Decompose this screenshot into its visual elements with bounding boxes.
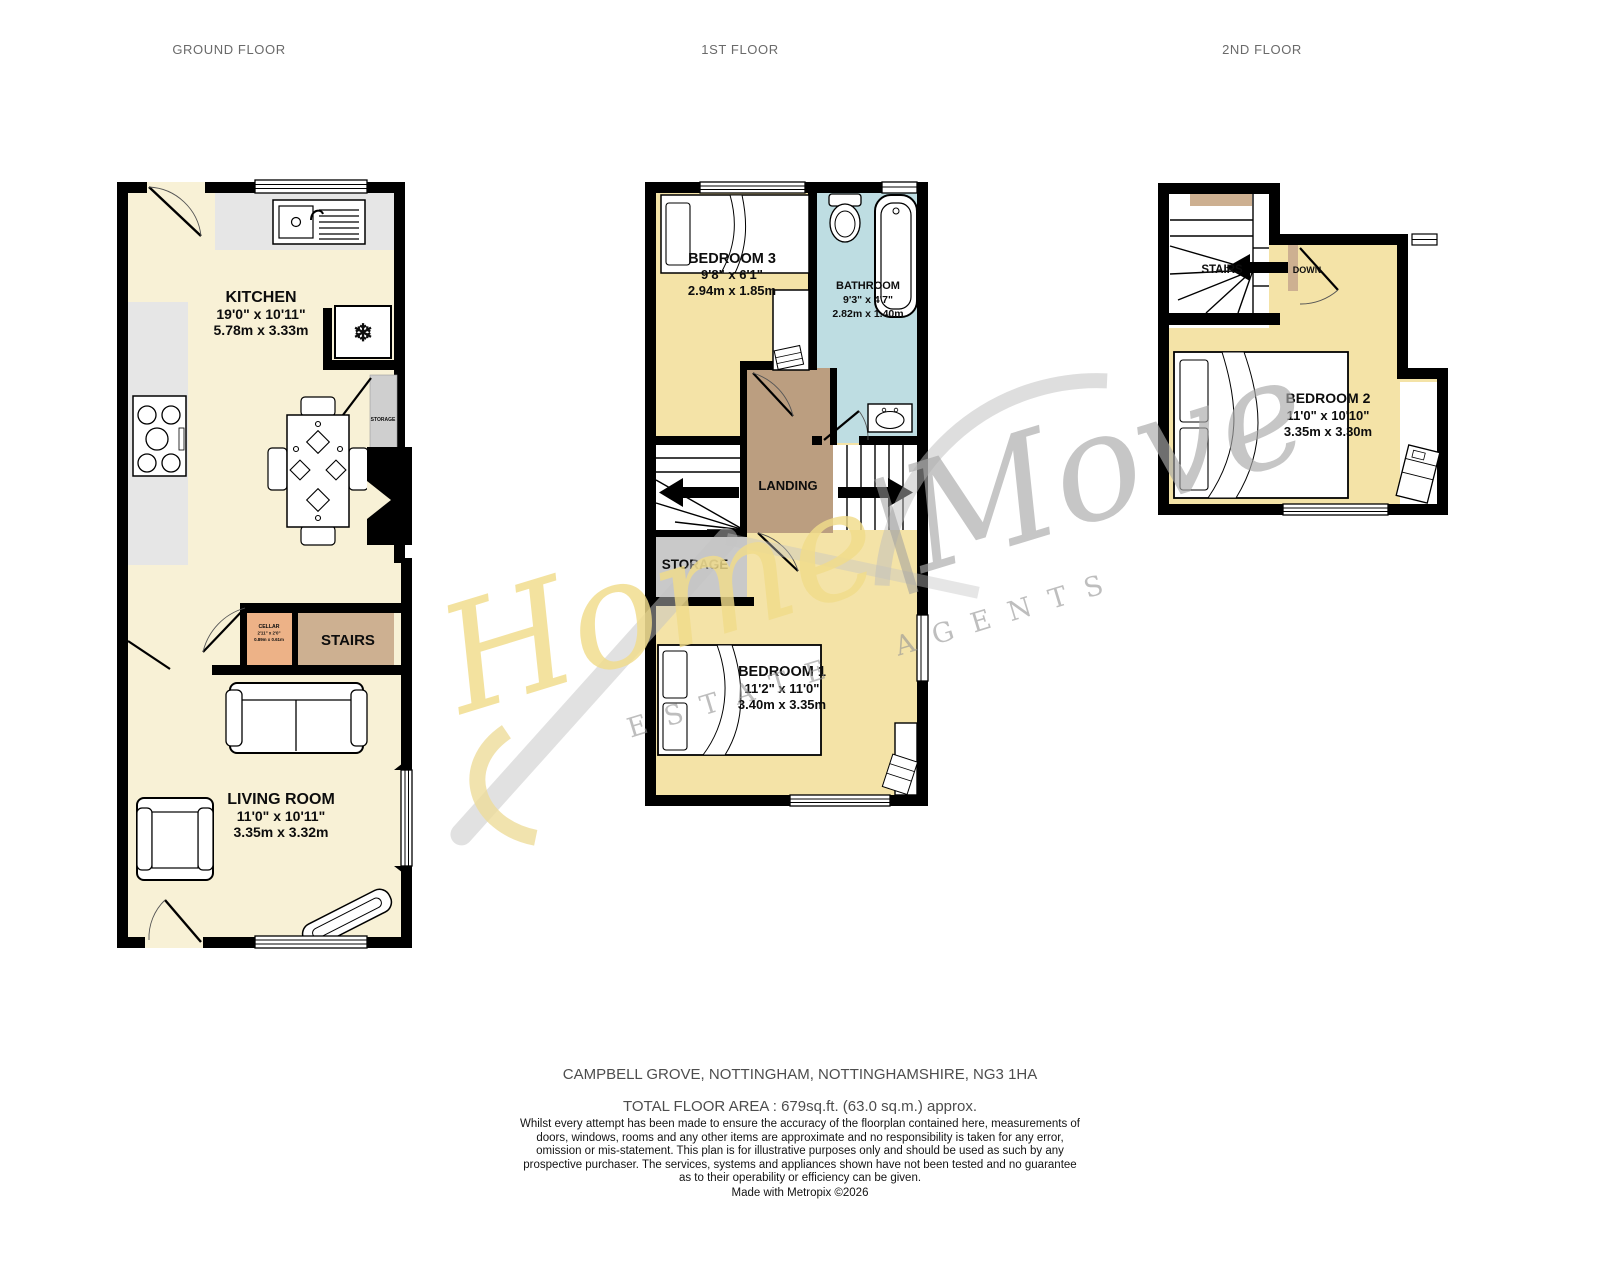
disclaimer-block: Whilst every attempt has been made to en… xyxy=(518,1118,1083,1200)
svg-text:19'0" x 10'11": 19'0" x 10'11" xyxy=(216,306,305,322)
metropix-credit: Made with Metropix ©2026 xyxy=(518,1187,1083,1201)
stairs2-bottom-wall xyxy=(1158,313,1280,325)
svg-text:11'0" x 10'11": 11'0" x 10'11" xyxy=(237,808,325,824)
room-label-living: LIVING ROOM 11'0" x 10'11" 3.35m x 3.32m xyxy=(227,791,335,840)
room-label-bedroom3: BEDROOM 3 9'8" x 6'1" 2.94m x 1.85m xyxy=(688,251,776,298)
svg-text:5.78m x 3.33m: 5.78m x 3.33m xyxy=(214,322,309,338)
first-floor-plan: BEDROOM 3 9'8" x 6'1" 2.94m x 1.85m BATH… xyxy=(635,178,935,818)
svg-text:3.40m x 3.35m: 3.40m x 3.35m xyxy=(738,697,826,712)
wall-stub-fridge xyxy=(323,360,405,370)
band-wall-top xyxy=(245,603,405,613)
room-label-kitchen: KITCHEN 19'0" x 10'11" 5.78m x 3.33m xyxy=(214,289,309,338)
svg-text:BEDROOM 3: BEDROOM 3 xyxy=(688,251,776,267)
svg-text:2.94m x 1.85m: 2.94m x 1.85m xyxy=(688,283,776,298)
basin-icon xyxy=(868,404,912,432)
svg-text:2.82m x 1.40m: 2.82m x 1.40m xyxy=(832,308,903,320)
total-floor-area: TOTAL FLOOR AREA : 679sq.ft. (63.0 sq.m.… xyxy=(623,1098,977,1115)
kitchen-storage-label: STORAGE xyxy=(371,417,396,423)
sink-icon xyxy=(273,200,365,244)
room-label-storage: STORAGE xyxy=(662,557,729,572)
room-label-bedroom1: BEDROOM 1 11'2" x 11'0" 3.40m x 3.35m xyxy=(738,664,826,712)
stairs2-right-wall xyxy=(1269,183,1280,245)
property-address: CAMPBELL GROVE, NOTTINGHAM, NOTTINGHAMSH… xyxy=(563,1066,1038,1083)
room-label-stairs-ground: STAIRS xyxy=(321,632,375,649)
room-label-bedroom2: BEDROOM 2 11'0" x 10'10" 3.35m x 3.30m xyxy=(1284,390,1372,439)
dining-bay-wall xyxy=(367,447,412,545)
second-floor-label: 2ND FLOOR xyxy=(1222,42,1302,57)
svg-text:3.35m x 3.32m: 3.35m x 3.32m xyxy=(234,824,329,840)
ground-floor-plan: ❄ STORAGE xyxy=(115,178,415,958)
svg-text:3.35m x 3.30m: 3.35m x 3.30m xyxy=(1284,424,1372,439)
kitchen-window-top xyxy=(255,180,367,193)
band-wall-bottom xyxy=(212,665,405,675)
fridge-icon: ❄ xyxy=(335,306,391,358)
sofa-icon xyxy=(226,683,367,753)
svg-text:2'11" x 2'0": 2'11" x 2'0" xyxy=(257,631,280,636)
svg-text:KITCHEN: KITCHEN xyxy=(225,289,296,306)
living-window-bottom xyxy=(255,936,367,948)
svg-text:LIVING ROOM: LIVING ROOM xyxy=(227,791,335,808)
bed3-side-unit xyxy=(773,290,809,370)
room-label-landing: LANDING xyxy=(758,478,817,493)
svg-text:CELLAR: CELLAR xyxy=(258,624,279,630)
svg-text:0.89m x 0.61m: 0.89m x 0.61m xyxy=(254,637,284,642)
room-label-stairs2: STAIRS xyxy=(1201,264,1243,276)
svg-text:BATHROOM: BATHROOM xyxy=(836,280,900,292)
stove-icon xyxy=(133,396,186,476)
toilet-icon xyxy=(829,194,861,242)
disclaimer-text: Whilst every attempt has been made to en… xyxy=(520,1118,1080,1184)
svg-text:BEDROOM 2: BEDROOM 2 xyxy=(1286,390,1371,406)
first-floor-label: 1ST FLOOR xyxy=(701,42,778,57)
stairs2-top-landing xyxy=(1190,194,1252,206)
floorplan-page: GROUND FLOOR 1ST FLOOR 2ND FLOOR xyxy=(0,0,1600,1278)
room-label-bathroom: BATHROOM 9'3" x 4'7" 2.82m x 1.40m xyxy=(832,280,903,320)
second-floor-plan: STAIRS DOWN BEDROOM 2 11'0" x 10'10" 3.3… xyxy=(1150,178,1460,528)
cellar-stairs-divider xyxy=(292,613,298,665)
landing-floor xyxy=(747,368,833,533)
room-label-cellar: CELLAR 2'11" x 2'0" 0.89m x 0.61m xyxy=(254,624,284,642)
label-down: DOWN xyxy=(1293,265,1322,275)
svg-text:9'3" x 4'7": 9'3" x 4'7" xyxy=(843,294,893,306)
armchair-icon xyxy=(137,798,213,880)
svg-text:11'0" x 10'10": 11'0" x 10'10" xyxy=(1287,408,1370,423)
kitchen-storage-niche xyxy=(370,375,397,449)
svg-text:11'2" x 11'0": 11'2" x 11'0" xyxy=(745,681,820,696)
svg-text:BEDROOM 1: BEDROOM 1 xyxy=(738,664,826,680)
ground-floor-label: GROUND FLOOR xyxy=(172,42,285,57)
svg-text:9'8" x 6'1": 9'8" x 6'1" xyxy=(701,267,763,282)
svg-text:❄: ❄ xyxy=(353,320,373,347)
